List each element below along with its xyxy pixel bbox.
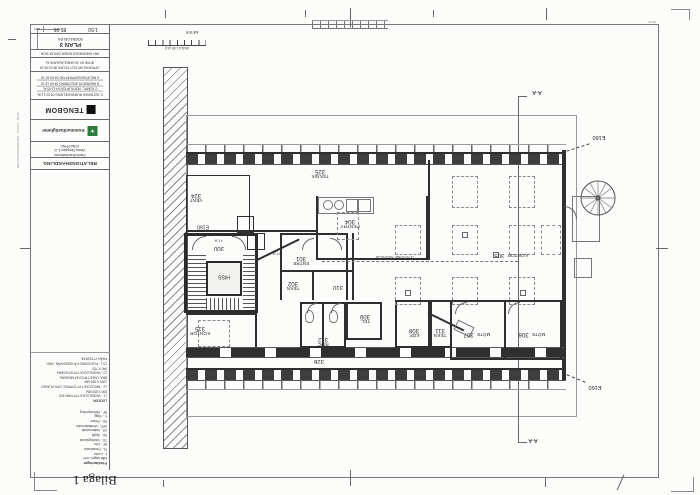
- address-line: Gamla Brandstationen: [54, 152, 86, 157]
- spiral-stair: [579, 179, 617, 217]
- room-label-308: KÖP.308: [400, 327, 428, 338]
- notes-title: LUCKOR: [33, 398, 107, 403]
- fold-tick: [433, 10, 434, 17]
- legend-item: TD - Vädringslucka: [33, 437, 107, 442]
- kop-room-outline: [395, 300, 430, 348]
- tengbom-logo-icon: [86, 105, 95, 114]
- corridor-label-326: 326: [306, 358, 332, 364]
- stair-landing: [206, 298, 242, 311]
- skylight-dashed: [395, 225, 421, 255]
- wall: [312, 270, 314, 300]
- room-label-325: TEKNIK325: [300, 168, 340, 179]
- fold-tick: [165, 10, 166, 18]
- tengbom-logo-text: TENGBOM: [45, 106, 84, 113]
- room-label-312: RWC312: [306, 336, 340, 347]
- meeting-divider: [504, 300, 506, 360]
- margin-tick-left: [8, 39, 16, 40]
- room-label-324: VENT324: [178, 192, 214, 203]
- client-logo-text: Kommunfastigheter: [42, 128, 85, 133]
- fold-tick: [546, 8, 547, 20]
- plan-subtitle: SÖDRA DELEN: [58, 37, 83, 41]
- note-line: BRA 1 MED TRYCKSTÄNGNING: [33, 374, 107, 379]
- crop-mark-top-right: [671, 9, 690, 20]
- plan-title-box: PLAN 3 SÖDRA DELEN: [30, 34, 110, 50]
- detector-mark: [520, 290, 526, 296]
- revision-header-row: ANT ÄNDRINGEN AVSER DATUM SIGN: [30, 50, 110, 58]
- fold-tick: [163, 480, 164, 487]
- revision-row: A RELATIONSUPPRÄTTAD 04-03-02 JS: [37, 75, 103, 80]
- bet-cell: BET: [30, 27, 43, 31]
- revision-table: D JUSTERAD RUMSINDELNING 05-02-12 AL C K…: [30, 72, 110, 100]
- annotation-line: [322, 261, 518, 262]
- appliance-box: [346, 199, 358, 212]
- revision-row: C KOMPL. VENTILATION 04-11-05 AL: [37, 85, 103, 91]
- room-label-310: 310: [325, 284, 351, 290]
- note-line: L2 - TAKLUCKA TYP GYPROC GPG PLANEX: [33, 384, 107, 389]
- legend-item: L - Lucka: [33, 451, 107, 456]
- address-band: Gamla Brandstationen Västra Storgatan 3-…: [30, 142, 110, 158]
- revision-row: B ÄNDRAD PLANLÖSNING 04-06-18 JS: [37, 79, 103, 85]
- room-label-311: TEKN311: [427, 327, 453, 338]
- plan-title: PLAN 3: [58, 41, 83, 47]
- scale-cell: 1:50: [76, 26, 110, 32]
- appliance-box: [358, 199, 371, 212]
- legend-item: V - Vägg: [33, 414, 107, 419]
- wall: [428, 160, 430, 260]
- revision-row: D JUSTERAD RUMSINDELNING 05-02-12 AL: [37, 91, 103, 97]
- legend-item: SD - Spjäll: [33, 432, 107, 437]
- tengbom-band: TENGBOM: [30, 100, 110, 120]
- north-facade-windows: [186, 152, 566, 165]
- scanned-drawing-sheet: 85-05 RELATIONSHANDLING · PLAN 3 · 85.05…: [0, 0, 700, 495]
- duct-shaft: [237, 216, 254, 233]
- skylight-dashed: [452, 277, 478, 305]
- notes-block: LUCKOR L1 - VINDSLUCKA TYP RNM 870 600 X…: [30, 352, 110, 405]
- status-text: RELATIONSHANDLING: [43, 161, 97, 166]
- skylight-dashed: [509, 176, 535, 208]
- note-line: L3 - VINDSLUCKA TYP BYGGBRA: [33, 370, 107, 375]
- fold-tick: [305, 10, 306, 17]
- duct-shaft: [247, 233, 265, 250]
- room-label-301: ENTRE301: [283, 255, 319, 266]
- room-label-309: TEL.309: [350, 313, 380, 324]
- detector-mark: [405, 290, 411, 296]
- meta-row-1: UPPDRAG NR 2017-03 DATUM 03-09-18: [40, 65, 99, 70]
- legend-item: VS - Vattenschakt: [33, 428, 107, 433]
- note-line: L1 - VINDSLUCKA TYP RNM 870: [33, 393, 107, 398]
- note-line: L5:1 - PLACERING PÅ NEDERVÅN. VIND: [33, 360, 107, 365]
- crop-mark-bottom-left: [34, 472, 57, 491]
- fold-tick: [545, 478, 546, 487]
- legend-item: DF - Dörr: [33, 442, 107, 447]
- note-line: 600 X 600 MM: [33, 388, 107, 393]
- skylight-dashed: [541, 225, 561, 255]
- room-label-315: KONTOR315: [182, 325, 218, 336]
- room-label-302: TEKN302: [276, 280, 310, 291]
- sink-circle: [323, 200, 333, 210]
- scale-number-row: BET 85.05 1:50: [30, 24, 110, 34]
- client-logo-icon: ✦: [88, 126, 98, 136]
- stair-flight-right: [243, 255, 256, 311]
- e160-label: E160: [580, 384, 610, 390]
- room-label-306: MÖTE306: [510, 331, 554, 337]
- section-label-bottom: A-A: [522, 437, 544, 443]
- legend-item: PD - Pelare: [33, 418, 107, 423]
- note-line: 940 X 750: [33, 365, 107, 370]
- address-line: Västra Storgatan 3-12: [54, 147, 86, 152]
- annotation-text: +5,70 UK BEF. TAKSTOLAR: [322, 255, 414, 259]
- level-mark: +7,4: [204, 238, 234, 242]
- stove-circle: [334, 200, 344, 210]
- wall: [280, 270, 352, 272]
- legend-title: Förklaringar: [33, 460, 107, 466]
- legend-block: Förklaringar Mått anges i mm L - Lucka F…: [30, 405, 110, 470]
- client-band: ✦ Kommunfastigheter: [30, 120, 110, 142]
- center-tick-bottom: [350, 470, 351, 486]
- room-label-300: 300: [204, 245, 234, 251]
- east-exterior-wall: [562, 150, 566, 380]
- revision-header: ANT ÄNDRINGEN AVSER DATUM SIGN: [41, 51, 99, 56]
- room-label-307: MÖTE307: [455, 331, 499, 337]
- section-tick-top: [518, 96, 527, 97]
- binding-strip: [312, 20, 388, 29]
- legend-item: NF - Nödutrymning: [33, 409, 107, 414]
- center-tick-right: [656, 248, 668, 249]
- meta-rows: UPPDRAG NR 2017-03 DATUM 03-09-18 RITAD …: [30, 58, 110, 72]
- elevator-label: HISS: [208, 273, 240, 279]
- margin-microtext: RELATIONSHANDLING · PLAN 3 · 85.05: [16, 58, 20, 168]
- detector-mark: [462, 232, 468, 238]
- scalebar-caption: SKALA 1:50 (A1): [146, 46, 208, 50]
- skylight-dashed: [509, 225, 535, 255]
- e160-label: E160: [190, 223, 216, 229]
- stair-flight-left: [188, 255, 206, 311]
- roof-hatch-box: [574, 258, 592, 278]
- south-facade-posts: [186, 380, 566, 390]
- scalebar-meter-label: METER: [180, 30, 204, 34]
- wall: [352, 233, 354, 300]
- number-cell: 85.05: [43, 26, 76, 32]
- address-line: JÖNKÖPING: [54, 143, 86, 148]
- legend-note: Mått anges i mm: [33, 455, 107, 460]
- bilaga-stamp: Bilaga 1: [56, 472, 134, 488]
- level-mark: +7,4: [266, 251, 288, 255]
- e160-label: E160: [584, 134, 614, 140]
- corner-microtext: 85-05: [638, 20, 656, 24]
- section-label-top: A-A: [526, 89, 548, 95]
- legend-item: VPD - Ventilationsdon: [33, 423, 107, 428]
- skylight-dashed: [452, 225, 478, 255]
- legend-item: FL - Fasadlucka: [33, 446, 107, 451]
- room-label-305: KONTOR305: [484, 252, 538, 258]
- meta-row-2: RITAD AV JS HANDLÄGGARE AL: [40, 60, 99, 65]
- skylight-dashed: [452, 176, 478, 208]
- status-band: RELATIONSHANDLING: [30, 158, 110, 170]
- crop-mark-bottom-right: [671, 477, 694, 492]
- room-label-304: PENTRY304: [330, 218, 370, 229]
